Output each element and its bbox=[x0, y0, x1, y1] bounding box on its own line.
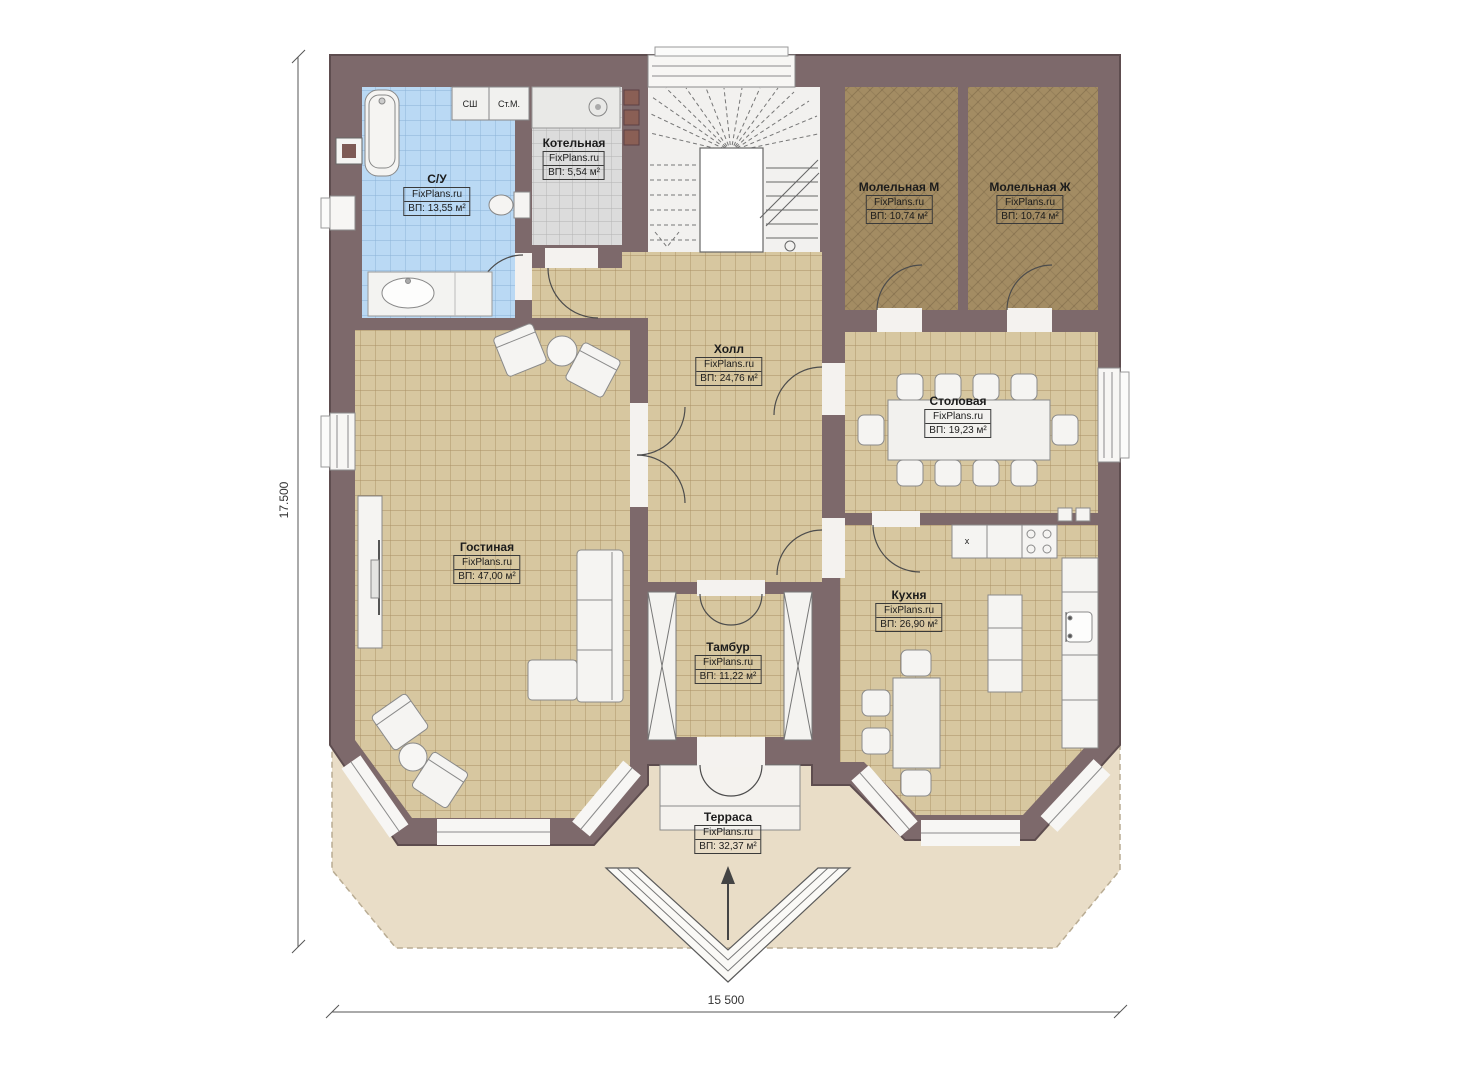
washbasin-icon bbox=[368, 272, 492, 316]
floor-plan-drawing bbox=[0, 0, 1474, 1080]
room-label-kuhnya: Кухня FixPlans.ru ВП: 26,90 м² bbox=[875, 588, 942, 632]
room-label-holl: Холл FixPlans.ru ВП: 24,76 м² bbox=[695, 342, 762, 386]
kitchen-sink-icon bbox=[1066, 612, 1092, 642]
floor-plan-page: С/У FixPlans.ru ВП: 13,55 м² Котельная F… bbox=[0, 0, 1474, 1080]
room-label-kotelnaya: Котельная FixPlans.ru ВП: 5,54 м² bbox=[543, 136, 606, 180]
cabinet-ssh-label: СШ bbox=[463, 99, 478, 109]
room-kuhnya-floor bbox=[840, 525, 1098, 815]
room-label-tambur: Тамбур FixPlans.ru ВП: 11,22 м² bbox=[695, 640, 762, 684]
room-label-terrasa: Терраса FixPlans.ru ВП: 32,37 м² bbox=[694, 810, 761, 854]
room-label-molelnaya-zh: Молельная Ж FixPlans.ru ВП: 10,74 м² bbox=[989, 180, 1070, 224]
room-label-su: С/У FixPlans.ru ВП: 13,55 м² bbox=[403, 172, 470, 216]
room-label-molelnaya-m: Молельная М FixPlans.ru ВП: 10,74 м² bbox=[859, 180, 939, 224]
cabinet-stm-label: Ст.М. bbox=[498, 99, 520, 109]
dimension-width-label: 15 500 bbox=[708, 993, 745, 1007]
coffee-table-icon bbox=[547, 336, 577, 366]
wall-flue-icon bbox=[624, 90, 639, 145]
dimension-height-label: 17.500 bbox=[277, 482, 291, 519]
kitchen-island-icon bbox=[988, 595, 1022, 692]
boiler-counter-icon bbox=[532, 87, 620, 128]
tv-stand-icon bbox=[358, 496, 382, 648]
vent-shaft-icon bbox=[336, 138, 362, 164]
sink-mark-label: х bbox=[965, 536, 970, 546]
room-label-stolovaya: Столовая FixPlans.ru ВП: 19,23 м² bbox=[924, 394, 991, 438]
bathtub-icon bbox=[365, 90, 399, 176]
room-label-gostinaya: Гостиная FixPlans.ru ВП: 47,00 м² bbox=[453, 540, 520, 584]
kitchen-table-icon bbox=[893, 678, 940, 768]
coffee-table-icon bbox=[399, 743, 427, 771]
